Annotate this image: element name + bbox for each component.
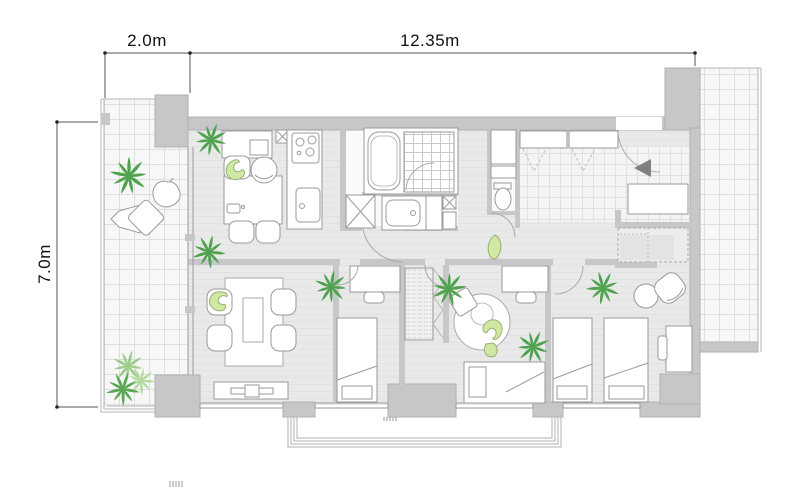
wall-top-right-block <box>665 68 700 130</box>
sofa-chair-icon <box>207 325 232 351</box>
low-table-icon <box>243 298 263 342</box>
shower-tile-icon <box>404 132 454 192</box>
dining-chair <box>229 221 254 243</box>
hatch-marks <box>170 481 182 487</box>
hatch-marks <box>384 417 396 421</box>
porch-end-wall <box>700 342 758 352</box>
sofa-chair-icon <box>271 325 296 351</box>
wall-top-left-block <box>155 95 188 147</box>
entry-closet <box>569 131 618 148</box>
bed-icon <box>604 318 648 402</box>
wall-bottom-center-block <box>388 384 456 417</box>
entry-closet <box>520 131 567 148</box>
kettle-icon <box>227 204 240 213</box>
porch-right-tiles <box>700 68 758 342</box>
shoe-cabinet <box>628 184 688 214</box>
toilet-icon <box>495 188 511 210</box>
tv-board-icon <box>214 382 288 399</box>
drain-pipe <box>101 113 110 125</box>
dimension-label-height: 7.0m <box>35 244 54 284</box>
dimension-label-main-width: 12.35m <box>400 31 460 50</box>
floor-plan-drawing: 2.0m 12.35m 7.0m <box>0 0 800 488</box>
desk-icon <box>502 266 548 292</box>
desk-chair <box>364 292 384 303</box>
wic-north-wall <box>615 222 700 228</box>
desk-icon <box>666 326 692 372</box>
closet-icon <box>405 268 433 340</box>
washbasin-icon <box>382 196 442 230</box>
bed-icon <box>553 318 592 402</box>
desk-chair <box>658 336 667 360</box>
dimension-label-left-width: 2.0m <box>127 31 167 50</box>
kitchen-sink-icon <box>296 188 320 222</box>
walk-in-closet <box>618 228 688 262</box>
washing-machine-icon <box>346 195 375 228</box>
sofa-chair-icon <box>271 289 296 315</box>
balcony-rail-bottom <box>170 417 561 487</box>
stove-icon <box>292 133 319 163</box>
bed-icon <box>337 318 377 402</box>
bed-icon <box>464 362 545 403</box>
dining-set <box>224 156 282 243</box>
wic-shelf <box>620 235 674 260</box>
dining-table-icon <box>224 176 282 224</box>
wall-bottom-left-block <box>155 375 200 417</box>
floor-plan-canvas: 2.0m 12.35m 7.0m <box>0 0 800 488</box>
dining-chair <box>256 221 280 243</box>
wall-bottom-right-block <box>660 374 700 404</box>
desk-chair <box>516 292 536 303</box>
